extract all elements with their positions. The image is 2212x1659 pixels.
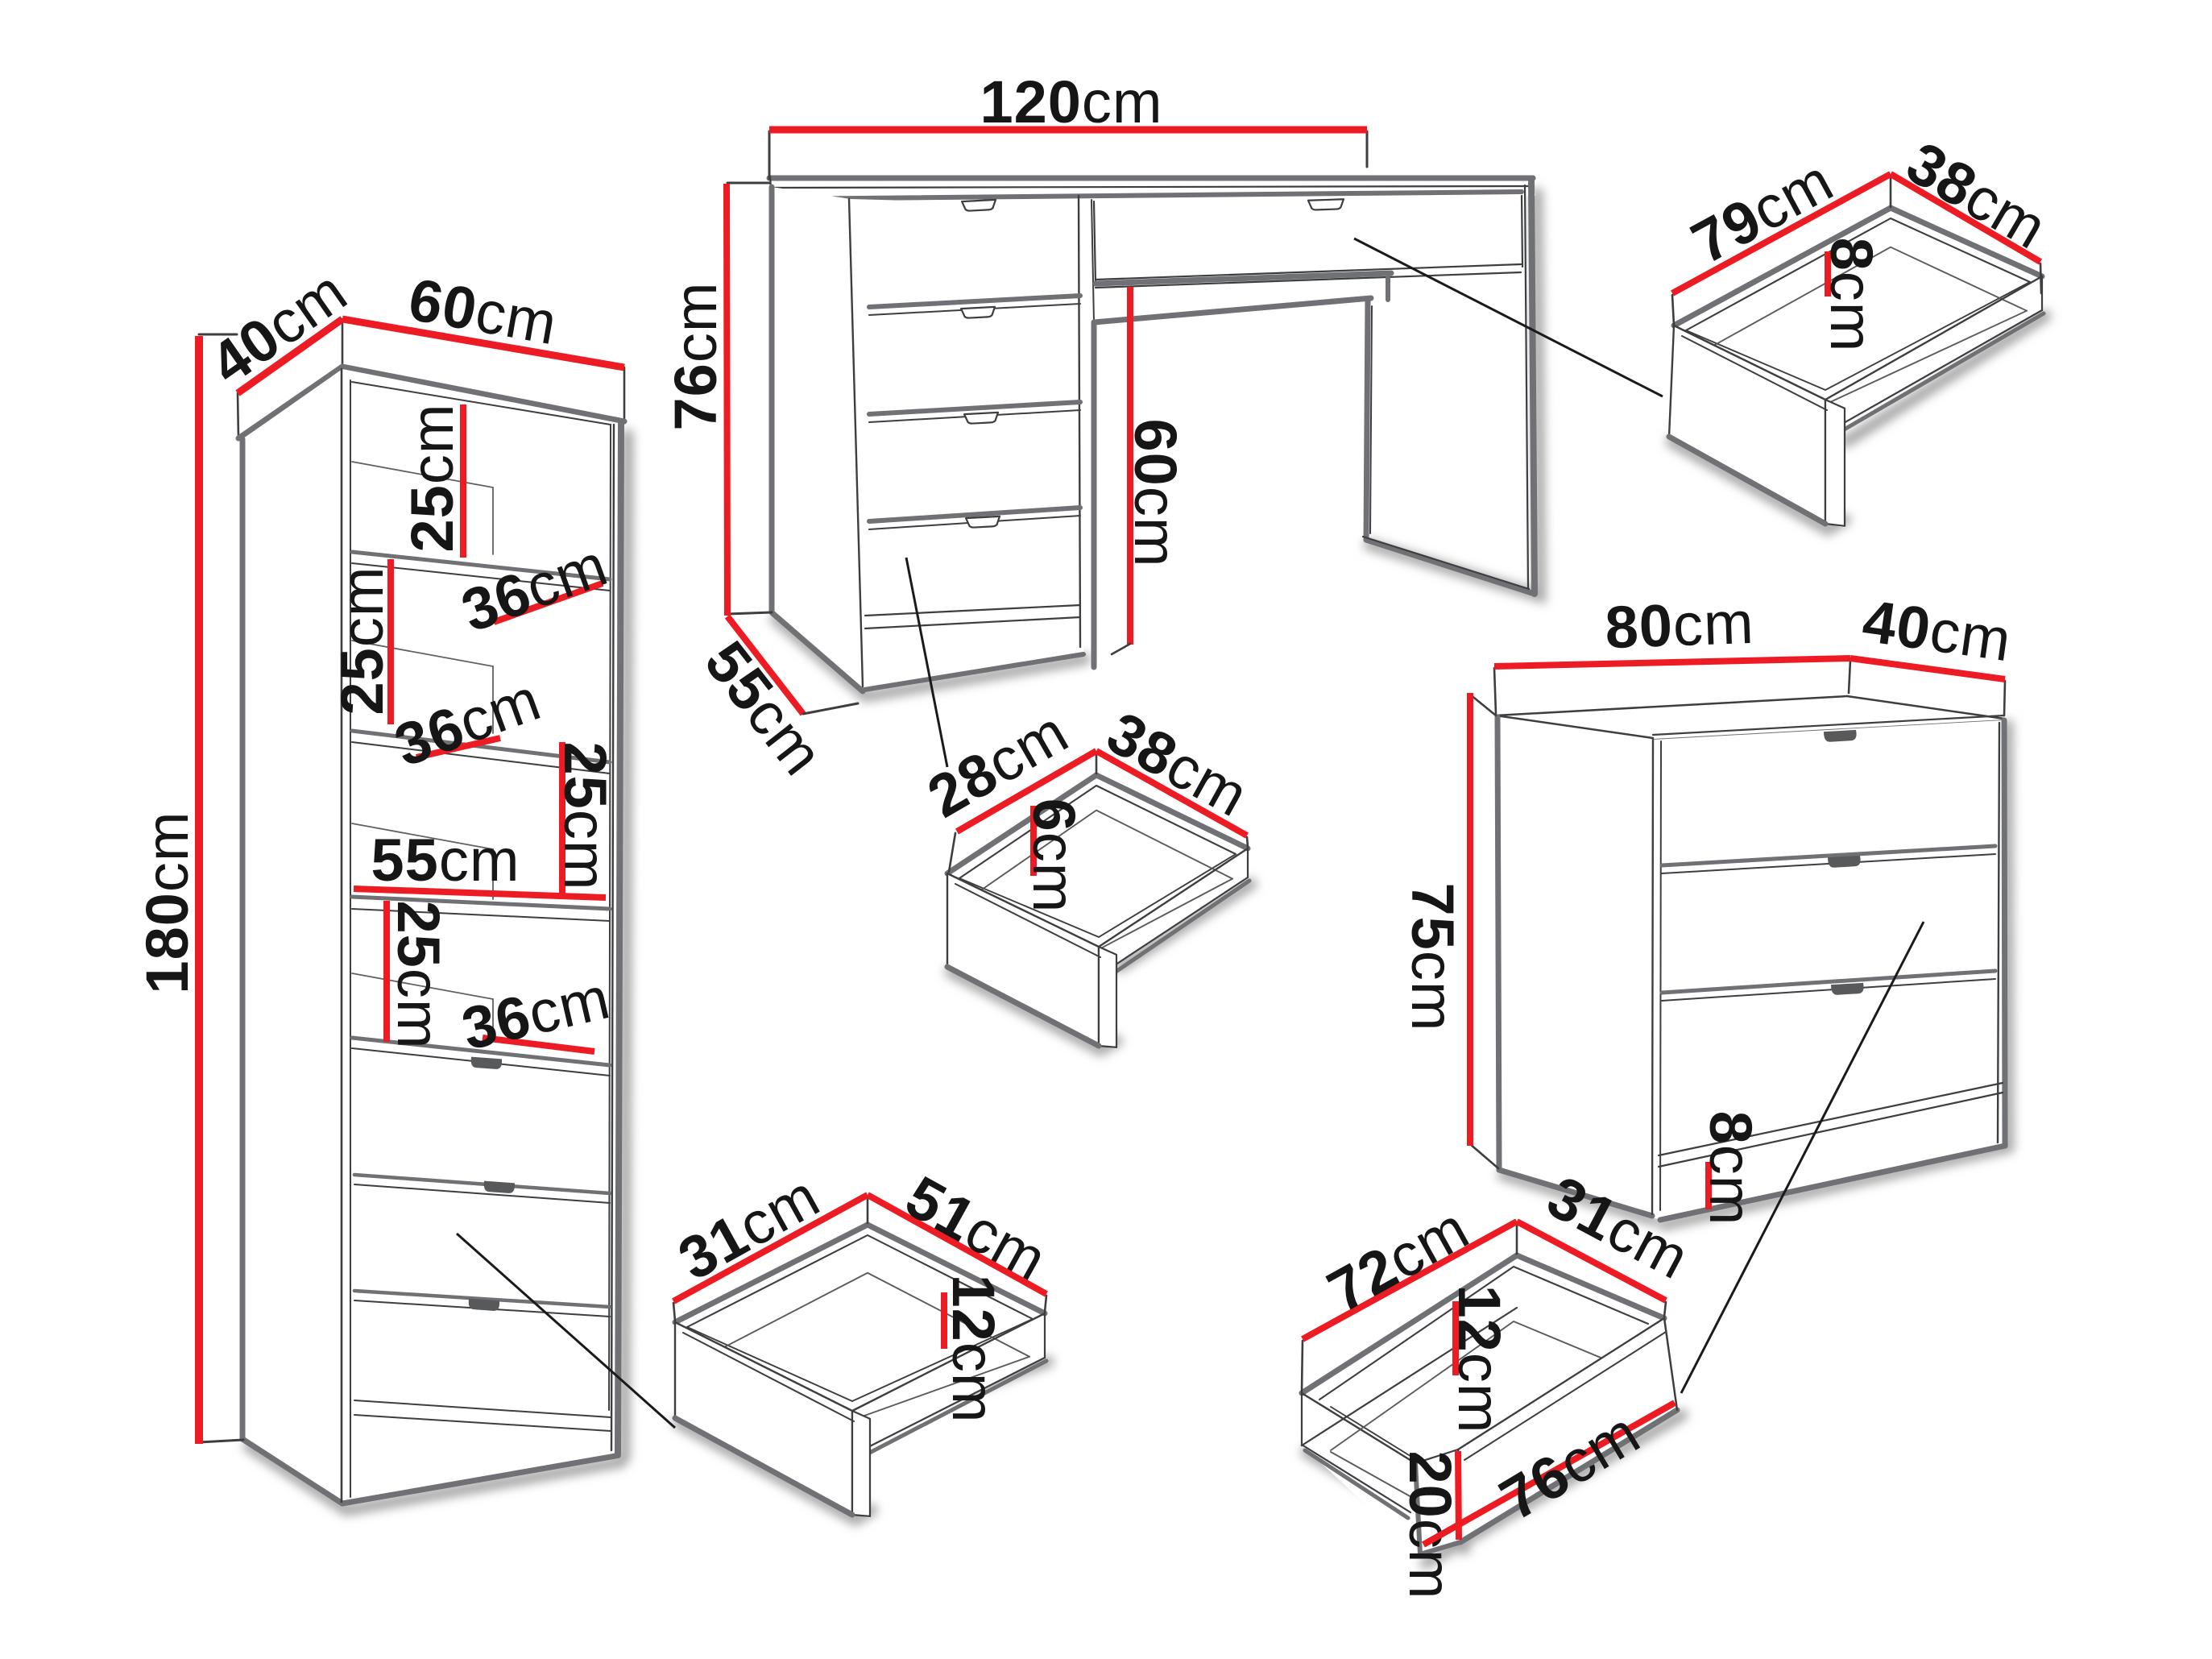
svg-text:120cm: 120cm xyxy=(980,68,1162,135)
svg-text:12cm: 12cm xyxy=(940,1275,1007,1424)
svg-text:60cm: 60cm xyxy=(1122,419,1189,568)
svg-text:25cm: 25cm xyxy=(329,566,396,715)
svg-text:55cm: 55cm xyxy=(371,827,520,894)
svg-text:25cm: 25cm xyxy=(399,404,466,553)
svg-text:180cm: 180cm xyxy=(134,811,201,993)
svg-text:25cm: 25cm xyxy=(552,742,619,891)
svg-text:12cm: 12cm xyxy=(1446,1285,1513,1434)
svg-text:76cm: 76cm xyxy=(662,282,729,431)
svg-text:75cm: 75cm xyxy=(1399,883,1466,1032)
svg-text:8cm: 8cm xyxy=(1818,238,1885,353)
svg-text:8cm: 8cm xyxy=(1697,1111,1764,1226)
svg-text:80cm: 80cm xyxy=(1604,589,1755,661)
svg-text:6cm: 6cm xyxy=(1021,798,1087,914)
svg-text:25cm: 25cm xyxy=(385,901,452,1050)
